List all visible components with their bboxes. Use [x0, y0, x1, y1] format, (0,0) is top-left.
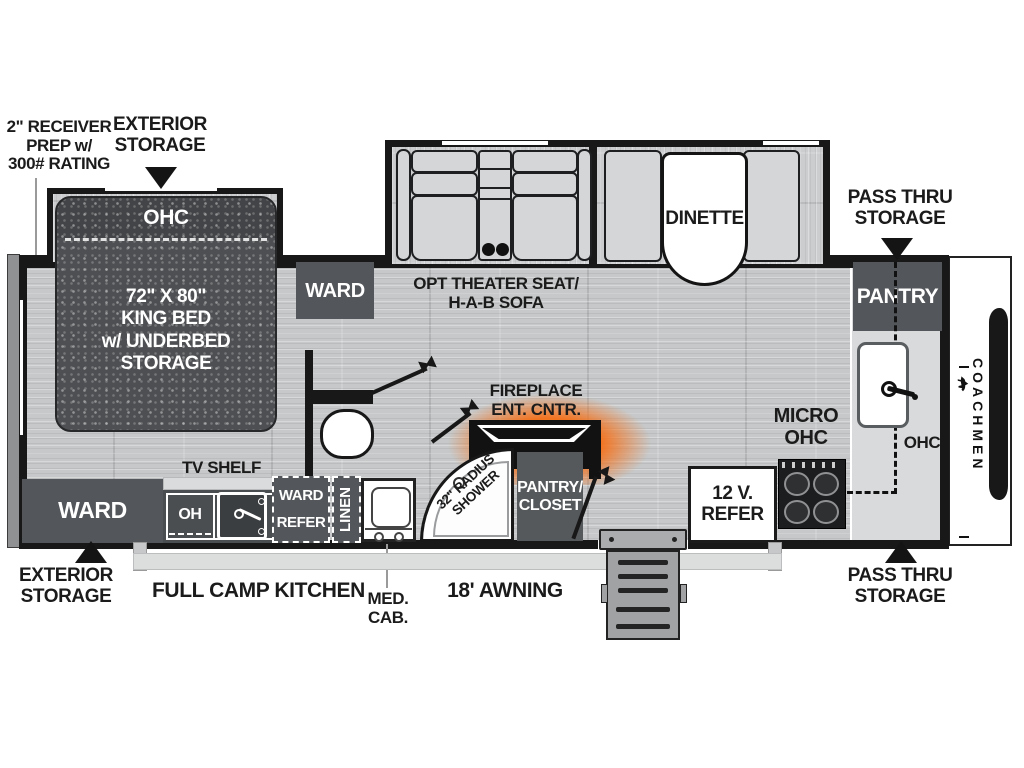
burner-1 [784, 472, 810, 496]
entry-steps [606, 550, 680, 640]
camp-oh-label: OH [173, 506, 207, 524]
ohc-dashed-line-horizontal [847, 491, 897, 494]
pass-thru-top-arrow [881, 238, 913, 260]
exterior-storage-top-callout: EXTERIOR STORAGE [110, 115, 210, 157]
dinette-table: DINETTE [661, 152, 748, 286]
step-tread [618, 574, 668, 579]
pantry-closet: PANTRY/ CLOSET [517, 452, 583, 541]
step-tread [618, 588, 668, 593]
exterior-storage-top-arrow [145, 167, 177, 189]
exterior-storage-bottom-arrow [75, 541, 107, 563]
tv-icon [477, 425, 591, 442]
tv-shelf-label: TV SHELF [163, 459, 280, 478]
sofa-console [478, 150, 512, 261]
coachmen-brand: COACHMEN [970, 358, 986, 548]
sofa-back-left-2 [411, 172, 478, 196]
stove-knob-strip [782, 462, 840, 468]
tv-shelf [163, 477, 280, 490]
bath-wall-vertical [305, 350, 313, 478]
wardrobe-bottom: WARD [22, 479, 163, 543]
linen-label: LINEN [338, 487, 355, 532]
sofa-back-right-2 [512, 172, 578, 196]
kitchen-ohc-label: OHC [898, 434, 946, 453]
camp-sink-hinge-top [258, 498, 265, 505]
pass-thru-top-callout: PASS THRU STORAGE [846, 188, 954, 230]
sofa-seat-left [411, 195, 478, 261]
pantry: PANTRY [853, 262, 942, 331]
step-screw-left [609, 537, 614, 542]
camp-faucet-knob [234, 509, 244, 519]
console-line-3 [480, 198, 510, 200]
receiver-callout-line [35, 178, 37, 256]
floorplan-canvas: COACHMEN OHC 72" X 80" KING BED w/ UNDER… [0, 0, 1024, 768]
vanity-knob-left [374, 532, 384, 542]
cupholder-right [496, 243, 509, 256]
sofa-caption: OPT THEATER SEAT/ H-A-B SOFA [386, 275, 606, 312]
burner-3 [784, 500, 810, 524]
linen-cabinet: LINEN [332, 476, 361, 543]
bath-wall-horizontal [305, 390, 373, 404]
bed-ohc-cabinet: OHC [57, 198, 275, 238]
sofa-window [442, 141, 548, 145]
receiver-callout: 2" RECEIVER PREP w/ 300# RATING [0, 118, 118, 174]
awning-rail [133, 553, 782, 570]
dinette-window [763, 141, 819, 145]
step-tab-left [601, 584, 608, 603]
vanity-knob-right [394, 532, 404, 542]
bed-ohc-label: OHC [143, 206, 188, 229]
dinette-bench-right [743, 150, 800, 262]
front-cap: COACHMEN [948, 256, 1012, 546]
rear-window [20, 300, 23, 435]
sofa-seat-right [512, 195, 578, 261]
exterior-storage-bottom-callout: EXTERIOR STORAGE [14, 566, 118, 608]
wardrobe-top: WARD [296, 262, 374, 319]
camp-sink-hinge-bottom [258, 528, 265, 535]
pass-thru-bottom-arrow [885, 541, 917, 563]
coachmen-logo-dash-top [959, 366, 969, 368]
console-line-1 [480, 168, 510, 170]
dinette-bench-left [604, 150, 662, 262]
bed-slideout-wall-left [47, 188, 53, 262]
full-camp-kitchen-callout: FULL CAMP KITCHEN [152, 579, 348, 602]
sofa-arm-left [396, 149, 411, 261]
micro-ohc-label: MICRO OHC [768, 405, 844, 449]
step-screw-right [672, 537, 677, 542]
entry-steps-platform [599, 529, 687, 550]
sofa-arm-right [577, 149, 592, 261]
bed-label: 72" X 80" KING BED w/ UNDERBED STORAGE [57, 286, 275, 376]
camp-kitchen-counter: OH [163, 490, 278, 543]
console-line-2 [480, 187, 510, 189]
vanity-base-line [365, 528, 412, 530]
camp-counter-dashed [169, 533, 211, 535]
pass-thru-bottom-callout: PASS THRU STORAGE [846, 566, 954, 608]
front-cap-tank-cover [989, 308, 1008, 500]
sofa-back-right-1 [512, 150, 578, 173]
burner-2 [813, 472, 839, 496]
burner-4 [813, 500, 839, 524]
entertainment-center-side [589, 449, 601, 479]
step-tread [618, 560, 668, 565]
dinette-slideout-wall-right [823, 140, 830, 264]
med-cab-callout: MED. CAB. [356, 590, 420, 627]
ward-refer-cabinet: WARD REFER [272, 476, 330, 543]
step-tab-right [680, 584, 687, 603]
kitchen-sink [857, 342, 909, 428]
step-tread [616, 607, 670, 612]
refer-12v: 12 V. REFER [688, 466, 777, 543]
fireplace-label: FIREPLACE ENT. CNTR. [462, 382, 610, 419]
tv-screen [482, 428, 586, 439]
toilet [320, 409, 374, 459]
bath-vanity [361, 478, 416, 542]
camp-counter-divider [213, 493, 215, 538]
camp-sink [217, 492, 267, 540]
range-stove [778, 459, 846, 529]
coachmen-logo-dash-bottom [959, 536, 969, 538]
bed-head-dashed-line [65, 238, 267, 241]
awning-callout: 18' AWNING [412, 579, 598, 602]
step-tread [616, 624, 670, 629]
cupholder-left [482, 243, 495, 256]
sofa-back-left-1 [411, 150, 478, 173]
king-bed: OHC 72" X 80" KING BED w/ UNDERBED STORA… [55, 196, 277, 432]
sofa-slideout-wall-left [385, 140, 392, 264]
bed-slideout-wall-right [277, 188, 283, 262]
dinette-label: DINETTE [665, 209, 743, 230]
vanity-sink [371, 487, 411, 528]
faucet-knob [912, 394, 918, 400]
